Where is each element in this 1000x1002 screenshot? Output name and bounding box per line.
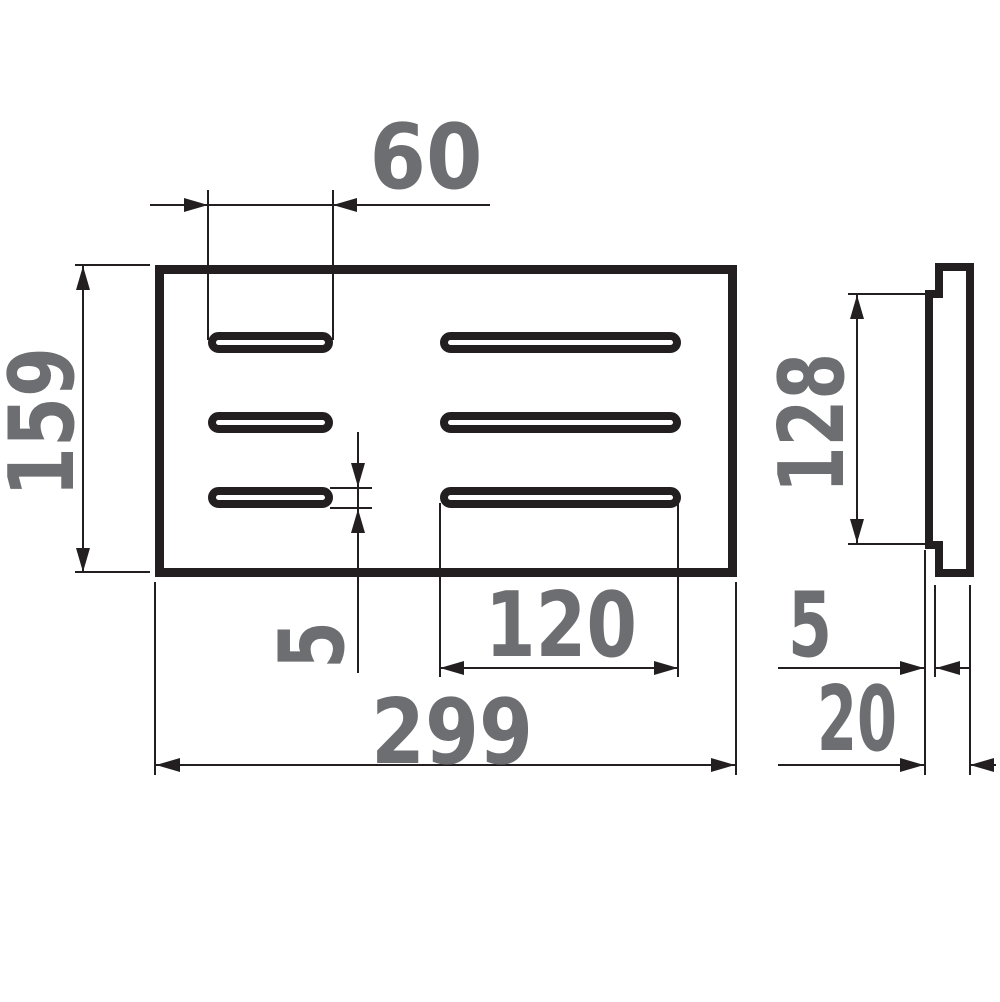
dim-side-height: 128 <box>760 294 930 544</box>
dim-label-lip-depth: 5 <box>788 573 832 678</box>
slot-row2-short <box>212 416 329 429</box>
arrowhead <box>850 519 864 543</box>
dim-long-slot-width: 120 <box>440 503 678 678</box>
arrowhead <box>654 661 678 675</box>
arrowhead <box>184 198 208 212</box>
side-view <box>929 267 970 573</box>
dim-slot-height: 5 <box>260 432 372 673</box>
arrowhead <box>711 758 735 772</box>
dim-label-total-depth: 20 <box>817 667 897 772</box>
arrowhead <box>156 758 180 772</box>
slot-row1-long <box>444 336 677 349</box>
slot-row3-short <box>212 491 329 504</box>
dim-label-slot-height: 5 <box>260 621 365 669</box>
arrowhead <box>351 509 365 533</box>
slot-row3-long <box>444 491 677 504</box>
technical-drawing: 60 159 5 120 <box>0 0 1000 1002</box>
arrowhead <box>850 295 864 319</box>
slot-row2-long <box>444 416 677 429</box>
arrowhead <box>936 661 960 675</box>
front-view <box>160 270 733 573</box>
dim-panel-width: 299 <box>155 582 736 785</box>
dim-short-slot-width: 60 <box>150 105 490 340</box>
arrowhead <box>900 661 924 675</box>
arrowhead <box>76 548 90 572</box>
drawing-canvas: 60 159 5 120 <box>0 0 1000 1002</box>
slot-row1-short <box>212 336 329 349</box>
dim-label-panel-height: 159 <box>0 347 95 497</box>
arrowhead <box>76 266 90 290</box>
arrowhead <box>351 463 365 487</box>
dim-label-panel-width: 299 <box>371 680 533 785</box>
arrowhead <box>970 758 994 772</box>
arrowhead <box>333 198 357 212</box>
arrowhead <box>440 661 464 675</box>
dim-label-long-slot-width: 120 <box>485 573 637 678</box>
dim-panel-height: 159 <box>0 265 150 573</box>
arrowhead <box>900 758 924 772</box>
dim-label-short-slot-width: 60 <box>370 105 483 210</box>
dim-label-side-height: 128 <box>760 353 865 493</box>
side-profile-outline <box>929 267 970 573</box>
